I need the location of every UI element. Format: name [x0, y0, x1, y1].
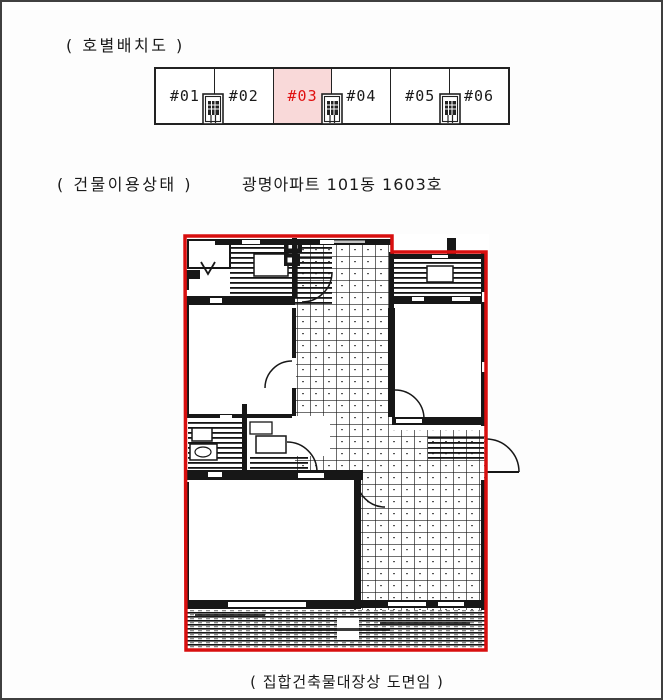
- unit-label: #04: [346, 87, 376, 105]
- floorplan-image: [180, 232, 525, 657]
- document-page: ( 호별배치도 ) #01 #02 #03 #04 #05 #06: [0, 0, 663, 700]
- plan-caption: ( 집합건축물대장상 도면임 ): [165, 671, 529, 692]
- elevator-icon: [202, 93, 224, 125]
- usage-status-value: 광명아파트 101동 1603호: [242, 171, 442, 195]
- unit-label: #01: [170, 87, 200, 105]
- elevator-icon: [439, 93, 461, 125]
- unit-label: #03: [288, 87, 318, 105]
- elevator-icon: [321, 93, 343, 125]
- utility-hatch: [250, 456, 308, 470]
- usage-status-label: ( 건물이용상태 ): [57, 171, 193, 195]
- unit-label: #02: [229, 87, 259, 105]
- unit-label: #06: [464, 87, 494, 105]
- unit-layout-title: ( 호별배치도 ): [66, 32, 185, 56]
- unit-label: #05: [405, 87, 435, 105]
